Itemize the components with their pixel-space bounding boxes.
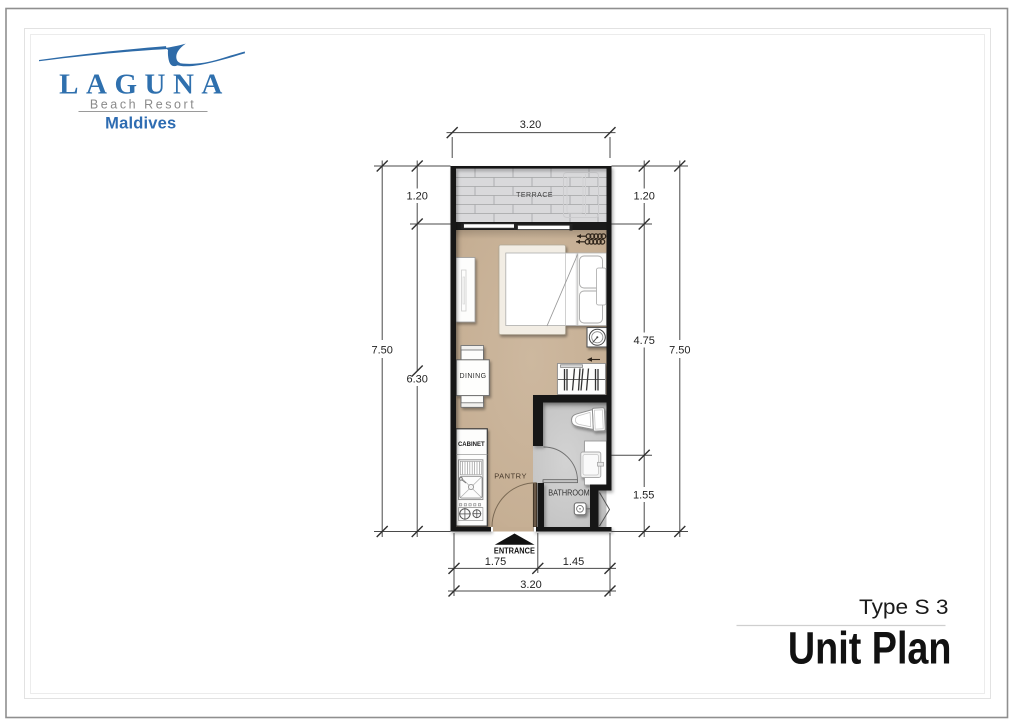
- svg-text:PANTRY: PANTRY: [494, 472, 527, 481]
- svg-text:7.50: 7.50: [371, 345, 392, 357]
- svg-text:6.30: 6.30: [406, 374, 427, 386]
- svg-text:3.20: 3.20: [520, 119, 541, 131]
- svg-text:7.50: 7.50: [669, 345, 690, 357]
- svg-text:3.20: 3.20: [520, 579, 541, 591]
- svg-text:TERRACE: TERRACE: [516, 192, 553, 199]
- svg-text:4.75: 4.75: [633, 335, 654, 347]
- svg-text:BATHROOM: BATHROOM: [548, 489, 590, 498]
- svg-text:Maldives: Maldives: [105, 115, 176, 133]
- svg-text:CABINET: CABINET: [458, 442, 485, 448]
- svg-text:DINING: DINING: [460, 373, 487, 380]
- svg-text:Type S 3: Type S 3: [859, 596, 949, 619]
- svg-text:1.75: 1.75: [485, 556, 506, 568]
- svg-text:1.20: 1.20: [633, 191, 654, 203]
- svg-text:Unit Plan: Unit Plan: [788, 623, 952, 674]
- svg-text:1.55: 1.55: [633, 490, 654, 502]
- svg-text:ENTRANCE: ENTRANCE: [494, 546, 536, 555]
- svg-text:Beach Resort: Beach Resort: [90, 98, 196, 112]
- svg-text:LAGUNA: LAGUNA: [59, 69, 230, 101]
- svg-text:1.20: 1.20: [406, 191, 427, 203]
- svg-text:1.45: 1.45: [563, 556, 584, 568]
